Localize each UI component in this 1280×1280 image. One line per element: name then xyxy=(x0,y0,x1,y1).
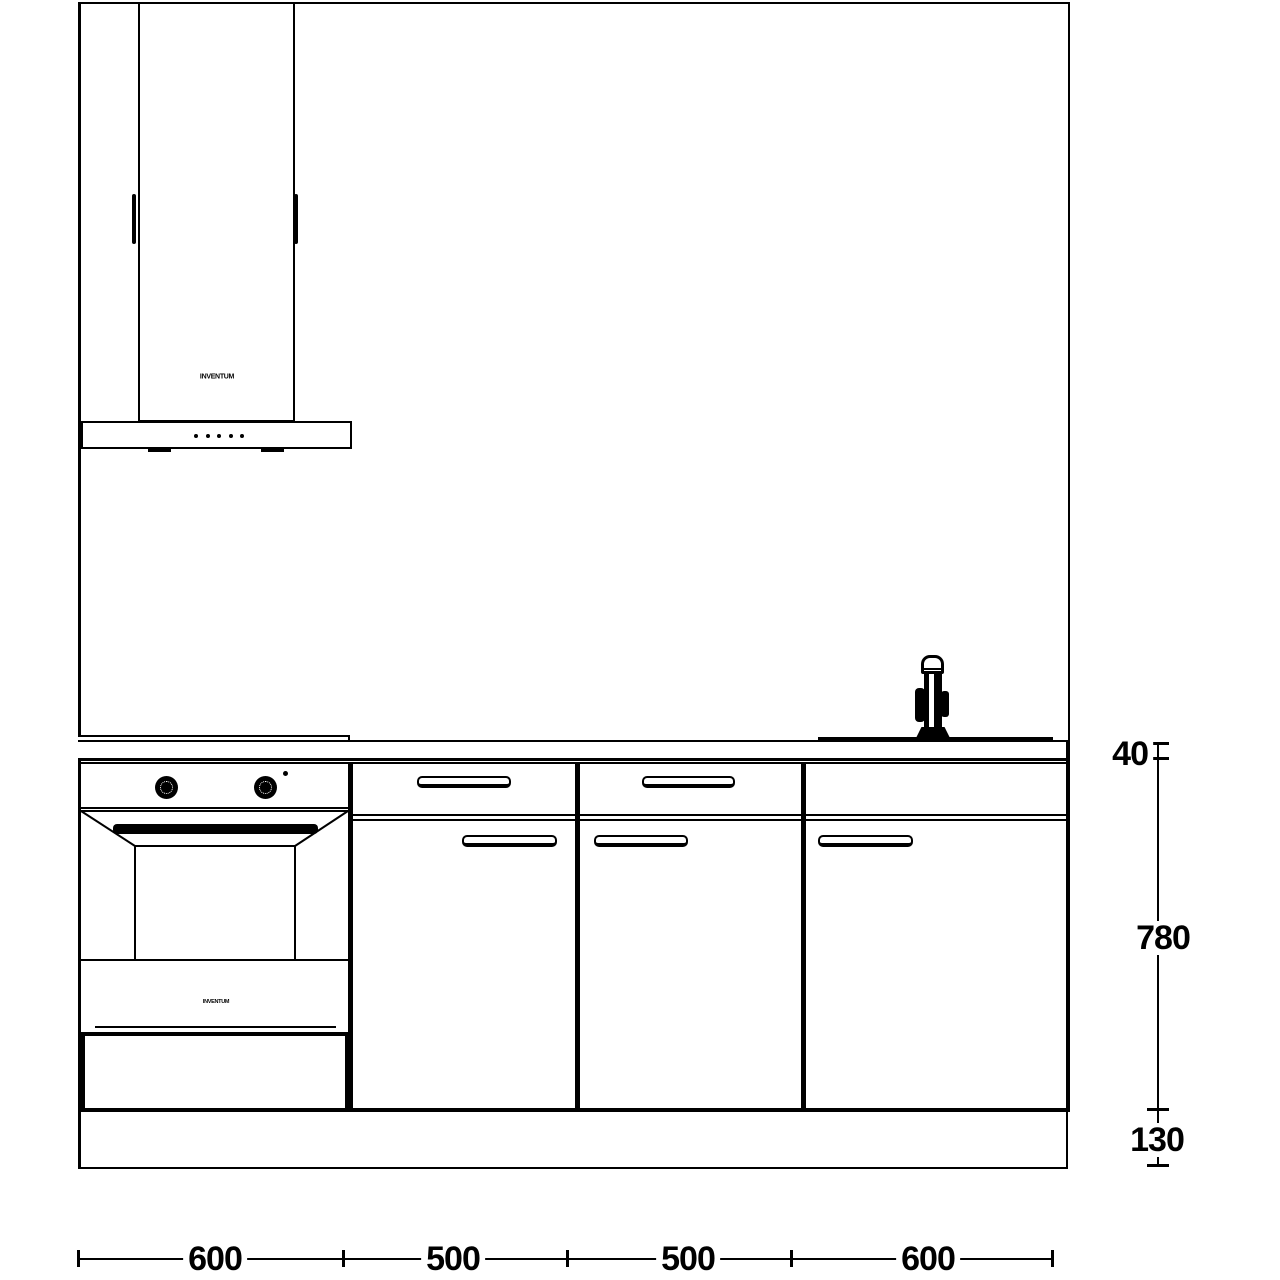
cab3-rail-line-upper xyxy=(580,814,801,816)
hood-bracket-left xyxy=(132,194,136,244)
hood-brand-text: INVENTUM xyxy=(200,374,234,381)
dim-bottom-tick xyxy=(1051,1250,1054,1267)
hood-button-dot xyxy=(240,434,244,438)
cab3-rail-line-lower xyxy=(580,819,801,821)
dim-label-worktop-height: 40 xyxy=(1107,737,1153,771)
cab3-door-handle xyxy=(594,835,688,847)
cab3-drawer-handle xyxy=(642,776,735,788)
plinth xyxy=(78,1112,1068,1169)
worktop xyxy=(78,740,1070,761)
hood-button-dot xyxy=(229,434,233,438)
cab4-rail-line-upper xyxy=(806,814,1066,816)
dim-bottom-tick xyxy=(342,1250,345,1267)
dim-right-tick xyxy=(1147,1108,1169,1111)
oven-brand-text: INVENTUM xyxy=(203,999,229,1005)
wall-left-line xyxy=(78,2,81,1169)
cab2-rail-line-upper xyxy=(353,814,575,816)
cab4-rail-line-lower xyxy=(806,819,1066,821)
oven-door-handle xyxy=(113,824,318,834)
oven-knob-right xyxy=(254,776,277,799)
hood-chimney xyxy=(138,2,295,422)
cabinet-right-edge xyxy=(1066,741,1070,1112)
hood-lip-mark-right xyxy=(261,449,284,452)
oven-indicator-light xyxy=(283,771,288,776)
cab2-drawer-handle xyxy=(417,776,511,788)
dim-label-cab3-width: 500 xyxy=(656,1242,720,1276)
oven-knob-marking xyxy=(259,781,272,794)
oven-knob-left xyxy=(155,776,178,799)
dim-label-oven-unit-width: 600 xyxy=(183,1242,247,1276)
faucet-icon xyxy=(910,650,970,742)
oven-storage-drawer xyxy=(81,1032,349,1108)
dim-label-cabinet-height: 780 xyxy=(1131,921,1195,955)
hood-buttons xyxy=(194,434,244,439)
dim-right-tick xyxy=(1147,1164,1169,1167)
hood-button-dot xyxy=(217,434,221,438)
dim-bottom-tick xyxy=(790,1250,793,1267)
dim-bottom-tick xyxy=(566,1250,569,1267)
kitchen-elevation-drawing: INVENTUM xyxy=(0,0,1280,1280)
dim-bottom-tick xyxy=(77,1250,80,1267)
cab4-door-handle xyxy=(818,835,913,847)
wall-right-line xyxy=(1068,2,1070,741)
cab2-door-handle xyxy=(462,835,557,847)
oven-lower-panel-line xyxy=(95,1026,336,1028)
dim-label-sink-unit-width: 600 xyxy=(896,1242,960,1276)
cab2-rail-line-lower xyxy=(353,819,575,821)
dim-label-plinth-height: 130 xyxy=(1125,1123,1189,1157)
hood-button-dot xyxy=(206,434,210,438)
cabinet-top-line xyxy=(80,762,1068,764)
oven-door xyxy=(80,808,350,963)
hood-button-dot xyxy=(194,434,198,438)
hood-bracket-right xyxy=(294,194,298,244)
dim-label-cab2-width: 500 xyxy=(421,1242,485,1276)
oven-knob-marking xyxy=(160,781,173,794)
hood-lip-mark-left xyxy=(148,449,171,452)
